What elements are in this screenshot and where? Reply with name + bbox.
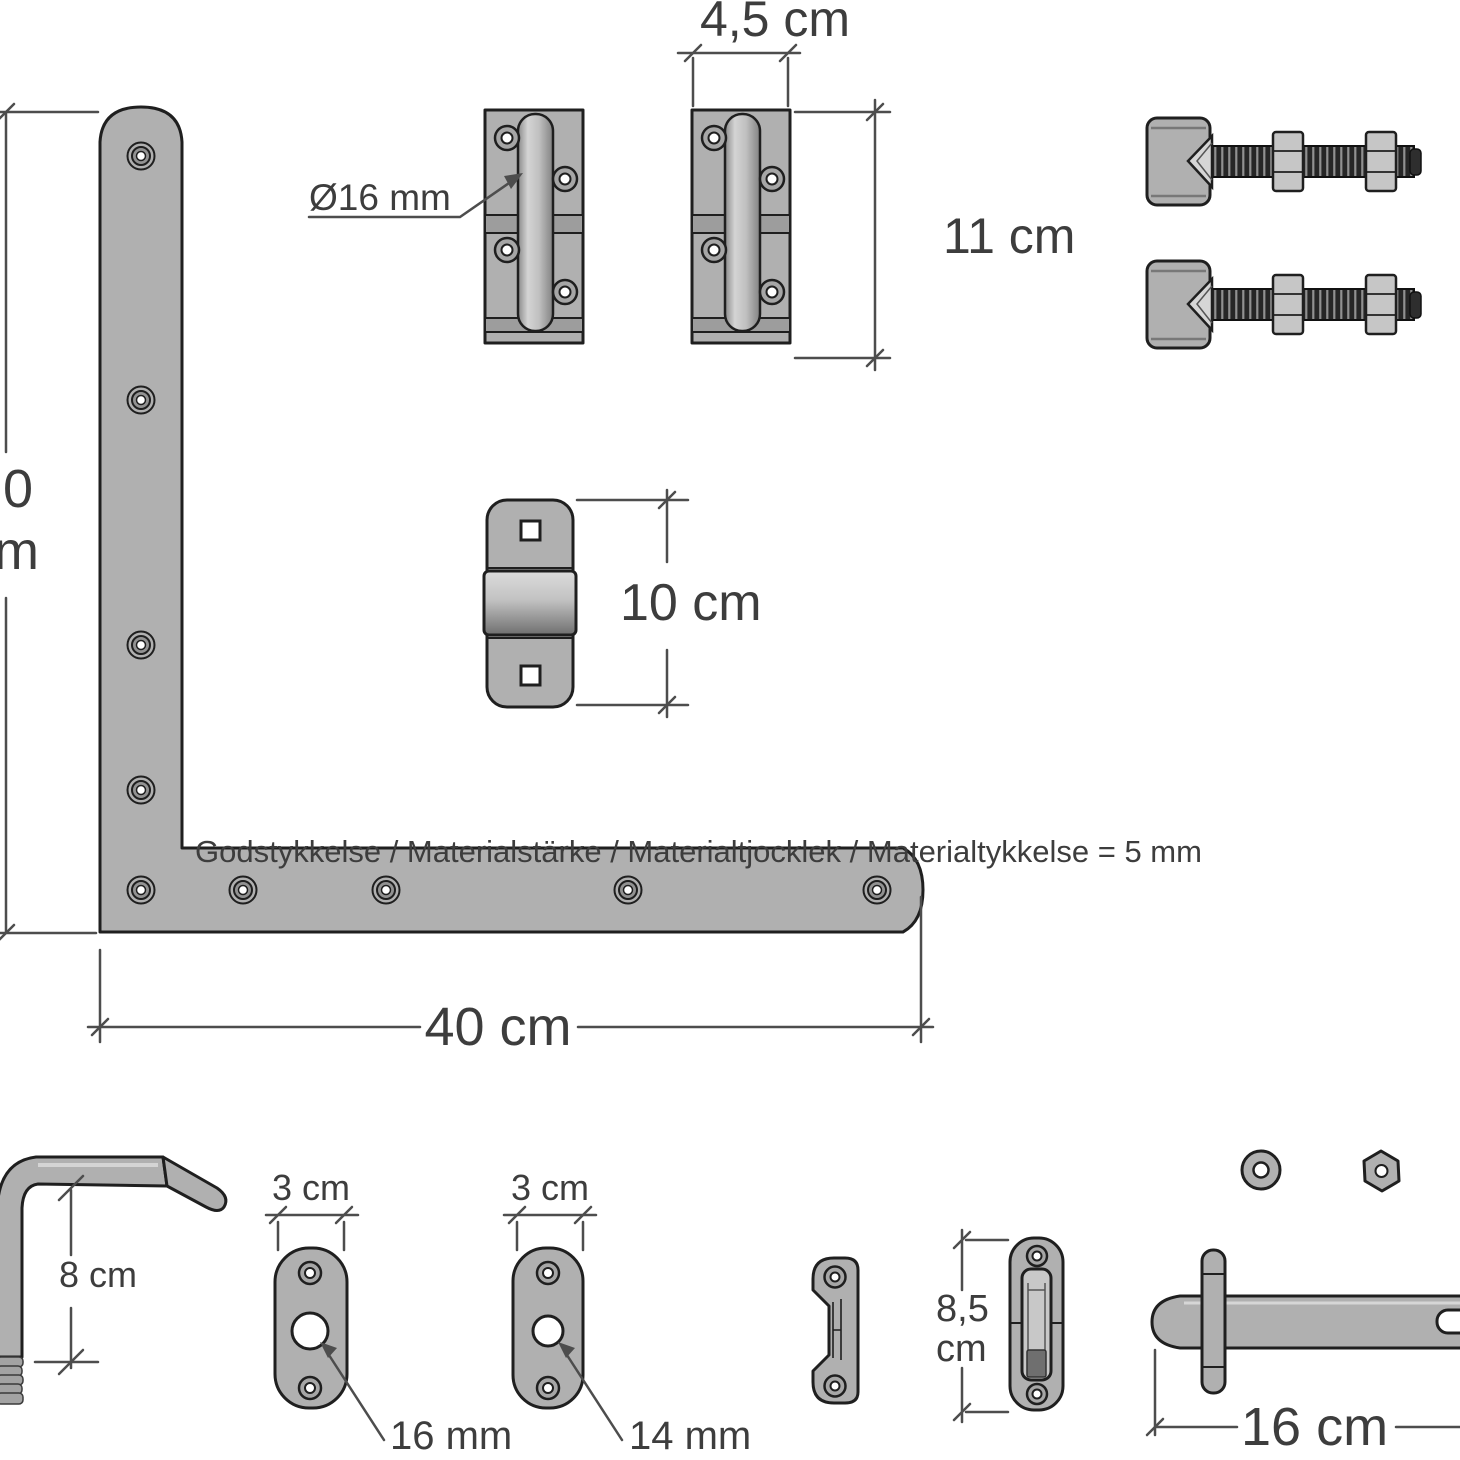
hinge-pin-tube: [518, 114, 553, 331]
dim-label-hinge-width: 4,5 cm: [700, 0, 850, 44]
screw-hole: [825, 1376, 846, 1397]
dim-label-plate16-width: 3 cm: [272, 1170, 350, 1206]
rivet-hole: [230, 877, 257, 904]
dim-label-left-partial-top: 0: [3, 462, 33, 516]
screw-hole: [702, 126, 726, 150]
mounting-plate-14mm: [513, 1248, 583, 1408]
hinge-block-left: [485, 110, 583, 343]
gudgeon-plate: [484, 500, 576, 707]
dim-label-plate16-hole: 16 mm: [390, 1416, 512, 1456]
dim-label-handle-height: 8 cm: [59, 1257, 137, 1293]
padbolt-handle: [1202, 1250, 1225, 1393]
dim-label-pin-diameter: Ø16 mm: [309, 179, 451, 216]
screw-hole: [825, 1267, 846, 1288]
rivet-hole: [128, 632, 155, 659]
dim-label-keeper-height-unit: cm: [936, 1330, 987, 1368]
screw-hole: [553, 167, 577, 191]
latch-striker: [813, 1258, 858, 1403]
rivet-hole: [128, 143, 155, 170]
rivet-hole: [373, 877, 400, 904]
mounting-plate-16mm: [275, 1248, 347, 1408]
screw-hole: [495, 126, 519, 150]
hinge-block-right: [692, 110, 790, 343]
dim-label-hinge-height: 11 cm: [943, 211, 1075, 261]
rivet-hole: [128, 877, 155, 904]
drawing-canvas: [0, 0, 1460, 1460]
dim-label-bracket-length: 40 cm: [424, 1000, 571, 1054]
square-hole: [521, 666, 540, 685]
screw-hole: [495, 238, 519, 262]
dim-label-gudgeon-height: 10 cm: [620, 577, 762, 629]
screw-hole: [760, 280, 784, 304]
dimension-3cm-plate16: [266, 1207, 358, 1250]
square-hole: [521, 521, 540, 540]
padbolt: [1152, 1250, 1460, 1393]
dim-label-plate14-hole: 14 mm: [629, 1416, 751, 1456]
screw-hole: [553, 280, 577, 304]
hex-nut: [1364, 1151, 1399, 1191]
screw-hole: [760, 167, 784, 191]
screw-hole: [537, 1377, 559, 1399]
rivet-hole: [864, 877, 891, 904]
gudgeon-tube: [484, 571, 576, 635]
hinge-pin-tube: [725, 114, 760, 331]
dim-label-left-partial-bottom: m: [0, 524, 39, 578]
dim-label-plate14-width: 3 cm: [511, 1170, 589, 1206]
washer: [1242, 1151, 1280, 1189]
dimension-45cm: [678, 45, 800, 106]
dim-label-keeper-height-value: 8,5: [936, 1290, 989, 1328]
material-thickness-note: Godstykkelse / Materialstärke / Material…: [195, 836, 1202, 867]
screw-hole: [537, 1262, 559, 1284]
screw-hole: [702, 238, 726, 262]
padbolt-keeper: [1010, 1238, 1063, 1410]
bolt-hole-14mm: [533, 1316, 563, 1346]
screw-hole: [1027, 1384, 1047, 1404]
rivet-hole: [128, 777, 155, 804]
dimension-11cm: [795, 100, 890, 370]
screw-hole: [1027, 1246, 1047, 1266]
dimension-3cm-plate14: [504, 1207, 596, 1250]
adjustable-hinge-bolt: [1147, 261, 1421, 348]
screw-hole: [299, 1377, 321, 1399]
adjustable-hinge-bolt: [1147, 118, 1421, 205]
dim-label-padbolt-length: 16 cm: [1241, 1400, 1388, 1454]
hex-nut-on-bolt: [1273, 132, 1303, 191]
padbolt-slot: [1437, 1310, 1460, 1333]
rivet-hole: [128, 387, 155, 414]
technical-drawing-gate-hardware: 4,5 cm Ø16 mm 11 cm 10 cm Godstykkelse /…: [0, 0, 1460, 1460]
threaded-end: [0, 1357, 23, 1404]
hex-nut-on-bolt: [1366, 132, 1396, 191]
screw-hole: [299, 1262, 321, 1284]
rivet-hole: [615, 877, 642, 904]
